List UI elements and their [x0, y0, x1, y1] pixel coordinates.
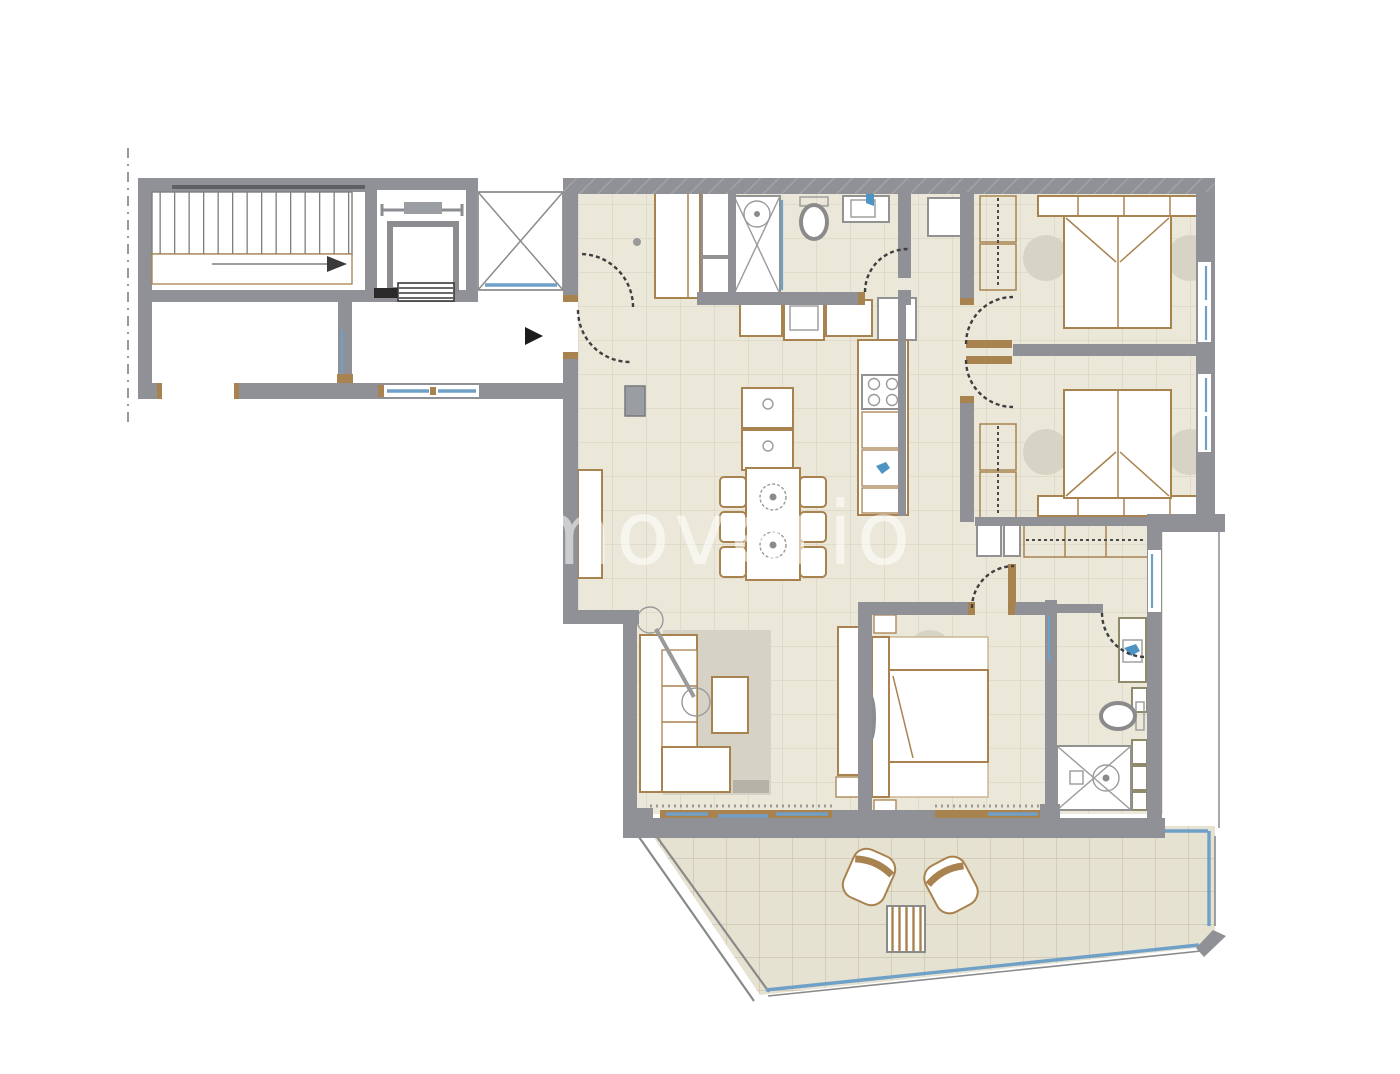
dining-chair [720, 512, 746, 542]
coffee-table [712, 677, 748, 733]
cooktop [862, 375, 904, 409]
light-shaft [478, 192, 563, 290]
stair-landing [152, 254, 352, 284]
washbasin [843, 194, 889, 222]
double-bed [872, 637, 988, 797]
floor-plan-drawing [0, 0, 1400, 1074]
dining-chair [720, 547, 746, 577]
entrance-arrow [525, 327, 543, 345]
entry-cabinet-1 [702, 192, 730, 256]
entry-door-opening [563, 301, 578, 353]
master-bedroom [868, 615, 988, 816]
terrace-side-table [887, 906, 925, 952]
floor-plan-canvas: immoverio [0, 0, 1400, 1074]
exterior-wall-right [1196, 192, 1215, 532]
kitchen-island [742, 388, 793, 470]
utility-panel [625, 386, 645, 416]
nightstand [874, 615, 896, 633]
elevator-car [390, 224, 456, 290]
headboard [1038, 196, 1198, 216]
dining-chair [720, 477, 746, 507]
dining-table [746, 468, 800, 580]
double-bed [1064, 216, 1171, 328]
dining-chair [800, 477, 826, 507]
washing-machine [928, 198, 962, 236]
corridor-partition [338, 298, 352, 385]
bedroom2-door-leaf [966, 356, 1012, 364]
stair-treads [152, 192, 352, 254]
entry-wardrobe [655, 192, 700, 298]
sideboard [578, 470, 602, 578]
double-bed [1064, 390, 1171, 498]
ceiling-point [633, 238, 641, 246]
bedroom-divider-wall [1013, 344, 1198, 356]
dining-chair [800, 547, 826, 577]
common-area [128, 148, 565, 424]
corridor [138, 298, 565, 399]
elevator-counterweight [404, 202, 442, 214]
living-bedroom-divider [858, 612, 872, 810]
master-door-leaf [1008, 564, 1016, 606]
tv-cabinet [838, 627, 860, 775]
ensuite-shower [1057, 746, 1131, 810]
bedroom1-door-leaf [966, 340, 1012, 348]
shower [734, 196, 782, 294]
dining-chair [800, 512, 826, 542]
hall-cabinet [977, 522, 1001, 556]
elevator [365, 178, 478, 302]
window-bench [733, 780, 769, 793]
exterior-wall-left [563, 192, 578, 618]
